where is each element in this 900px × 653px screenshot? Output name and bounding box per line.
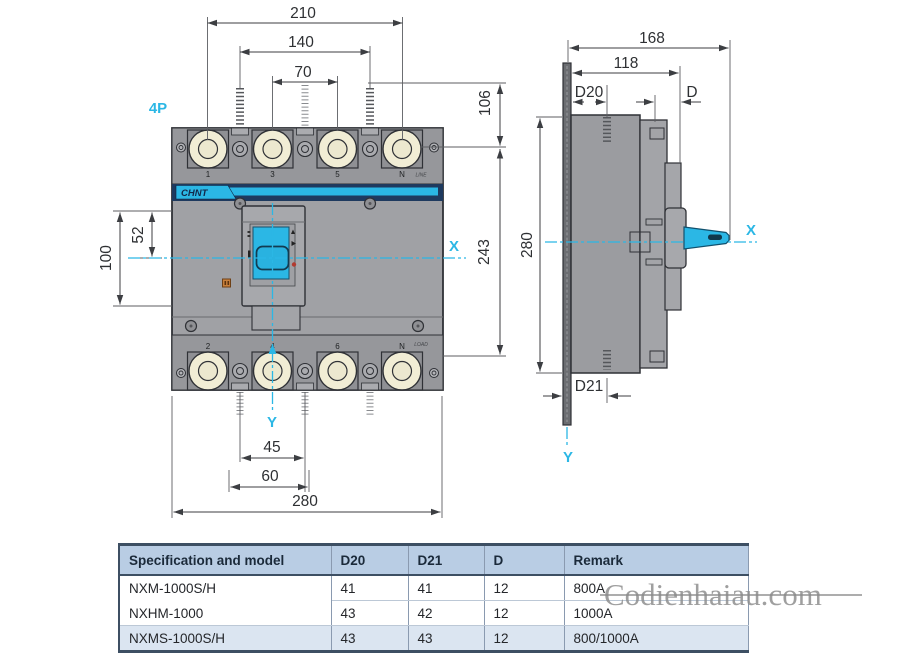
table-row: NXM-1000S/H 41 41 12 800A xyxy=(119,575,748,601)
dim-118: 118 xyxy=(614,55,639,72)
mounting-hole xyxy=(298,142,313,157)
terminal-lug-inner xyxy=(393,362,412,381)
dim-60: 60 xyxy=(261,468,279,485)
col-header-model: Specification and model xyxy=(119,545,331,576)
x-axis-label: X xyxy=(449,238,459,255)
dim-168: 168 xyxy=(639,30,665,47)
dim-d20: D20 xyxy=(575,84,604,101)
cell-remark: 800A xyxy=(564,575,748,601)
cell-d21: 42 xyxy=(408,601,484,626)
pole-notch xyxy=(362,128,379,135)
terminal-label: 6 xyxy=(335,342,340,351)
dim-100: 100 xyxy=(98,245,115,271)
terminal-lug-inner xyxy=(393,140,412,159)
cell-d21: 41 xyxy=(408,575,484,601)
cell-remark: 1000A xyxy=(564,601,748,626)
table-row: NXHM-1000 43 42 12 1000A xyxy=(119,601,748,626)
case-front xyxy=(640,120,667,368)
dim-280-height: 280 xyxy=(519,232,536,258)
pole-notch xyxy=(362,383,379,390)
col-header-remark: Remark xyxy=(564,545,748,576)
mounting-hole xyxy=(298,364,313,379)
col-header-d: D xyxy=(484,545,564,576)
terminal-lug-inner xyxy=(263,140,282,159)
cell-model: NXHM-1000 xyxy=(119,601,331,626)
col-header-d21: D21 xyxy=(408,545,484,576)
terminal-label: 5 xyxy=(335,170,340,179)
dim-45: 45 xyxy=(263,439,280,456)
side-view xyxy=(563,63,729,425)
dim-52: 52 xyxy=(130,226,147,243)
terminal-lug-inner xyxy=(199,140,218,159)
test-button xyxy=(223,279,231,287)
terminal-lug-inner xyxy=(328,140,347,159)
mounting-hole xyxy=(233,142,248,157)
handle-slot xyxy=(708,235,722,241)
mounting-hole xyxy=(363,142,378,157)
escutcheon-tab xyxy=(252,306,300,330)
y-axis-label-side: Y xyxy=(563,449,573,466)
terminal-label: 1 xyxy=(206,170,211,179)
dim-140: 140 xyxy=(288,34,314,51)
dim-280-width: 280 xyxy=(292,493,318,510)
terminal-label: 3 xyxy=(270,170,275,179)
dim-243: 243 xyxy=(476,239,493,265)
indicator-mark xyxy=(248,235,251,237)
line-side-label: LINE xyxy=(415,173,427,179)
pole-notch xyxy=(232,128,249,135)
dim-210: 210 xyxy=(290,5,316,22)
x-axis-label-side: X xyxy=(746,222,756,239)
cell-d: 12 xyxy=(484,601,564,626)
terminal-lug-inner xyxy=(199,362,218,381)
mounting-hole xyxy=(363,364,378,379)
on-mark xyxy=(248,251,251,258)
dim-d21: D21 xyxy=(575,378,603,395)
terminal-label: N xyxy=(399,342,405,351)
col-header-d20: D20 xyxy=(331,545,408,576)
load-side-label: LOAD xyxy=(414,342,428,348)
mounting-hole xyxy=(233,364,248,379)
pole-count-label: 4P xyxy=(149,100,167,117)
pole-notch xyxy=(297,383,314,390)
toggle-handle-side xyxy=(684,227,729,249)
brand-band: CHNT xyxy=(172,184,443,201)
spec-table: Specification and model D20 D21 D Remark… xyxy=(118,543,749,653)
brand-logo-text: CHNT xyxy=(181,188,209,199)
table-header-row: Specification and model D20 D21 D Remark xyxy=(119,545,748,576)
cell-d: 12 xyxy=(484,575,564,601)
pole-notch xyxy=(232,383,249,390)
drawing-page: CHNT 1 3 5 N LINE xyxy=(0,0,900,648)
indicator-mark xyxy=(248,231,251,233)
terminal-lug-inner xyxy=(328,362,347,381)
terminal-label: N xyxy=(399,170,405,179)
cell-d20: 43 xyxy=(331,601,408,626)
dim-d: D xyxy=(686,84,697,101)
pole-notch xyxy=(297,128,314,135)
y-axis-label: Y xyxy=(267,414,277,431)
dim-70: 70 xyxy=(294,64,312,81)
terminal-label: 2 xyxy=(206,342,211,351)
cell-model: NXM-1000S/H xyxy=(119,575,331,601)
escutcheon-boss xyxy=(665,208,686,268)
dim-106: 106 xyxy=(477,90,494,116)
dimension-drawing: CHNT 1 3 5 N LINE xyxy=(0,0,900,540)
red-indicator xyxy=(292,262,296,266)
cell-d20: 41 xyxy=(331,575,408,601)
